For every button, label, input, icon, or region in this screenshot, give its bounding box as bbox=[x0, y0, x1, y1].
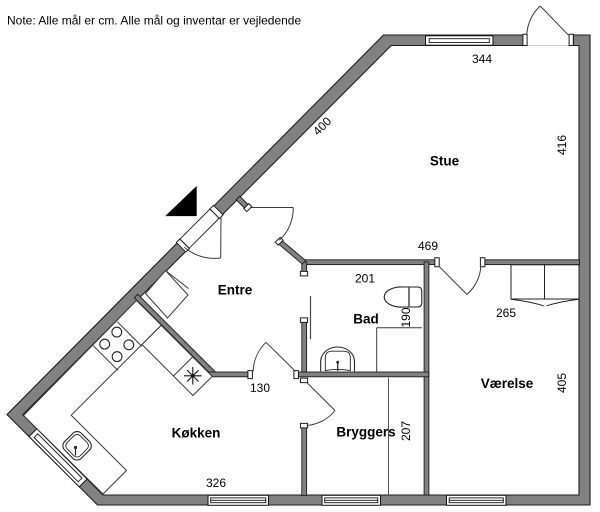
svg-text:469: 469 bbox=[418, 239, 438, 253]
svg-text:344: 344 bbox=[472, 52, 492, 66]
svg-text:326: 326 bbox=[206, 476, 226, 490]
svg-text:Værelse: Værelse bbox=[481, 376, 534, 391]
svg-text:Bad: Bad bbox=[353, 312, 379, 327]
svg-text:Stue: Stue bbox=[430, 154, 460, 169]
svg-text:130: 130 bbox=[250, 381, 270, 395]
svg-text:Note: Alle mål er cm. Alle mål: Note: Alle mål er cm. Alle mål og invent… bbox=[7, 14, 301, 28]
svg-text:405: 405 bbox=[555, 373, 569, 393]
svg-text:Bryggers: Bryggers bbox=[336, 425, 395, 440]
svg-text:416: 416 bbox=[555, 135, 569, 155]
svg-text:190: 190 bbox=[399, 307, 413, 327]
svg-text:Entre: Entre bbox=[218, 283, 253, 298]
svg-text:Køkken: Køkken bbox=[172, 426, 221, 441]
svg-text:265: 265 bbox=[496, 306, 516, 320]
svg-text:207: 207 bbox=[399, 421, 413, 441]
svg-text:201: 201 bbox=[355, 272, 375, 286]
